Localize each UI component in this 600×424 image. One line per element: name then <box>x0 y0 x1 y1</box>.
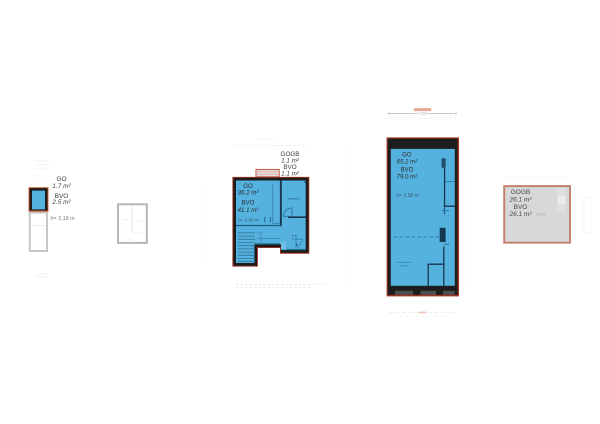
svg-text:BVO: BVO <box>514 204 528 211</box>
svg-text:1.1 m²: 1.1 m² <box>281 170 300 177</box>
svg-text:26.1 m²: 26.1 m² <box>508 197 532 204</box>
svg-text:h= 2,58 m: h= 2,58 m <box>396 193 418 199</box>
svg-text:65.2 m²: 65.2 m² <box>397 158 419 165</box>
svg-text:2.5 m²: 2.5 m² <box>51 199 71 206</box>
svg-text:1.7 m²: 1.7 m² <box>52 183 71 190</box>
svg-text:h= 2,58 m: h= 2,58 m <box>238 217 259 222</box>
svg-text:41.1 m²: 41.1 m² <box>238 207 260 214</box>
svg-text:BVO: BVO <box>242 199 255 206</box>
svg-text:GOGB: GOGB <box>511 189 531 196</box>
svg-text:BVO: BVO <box>400 167 413 174</box>
svg-text:26.1 m²: 26.1 m² <box>508 211 532 218</box>
svg-text:79.0 m²: 79.0 m² <box>397 174 419 181</box>
svg-text:7.215: 7.215 <box>418 112 427 116</box>
svg-text:36.2 m²: 36.2 m² <box>238 190 260 197</box>
svg-text:GO: GO <box>402 151 412 158</box>
svg-text:h= 3,18 m: h= 3,18 m <box>51 216 76 222</box>
